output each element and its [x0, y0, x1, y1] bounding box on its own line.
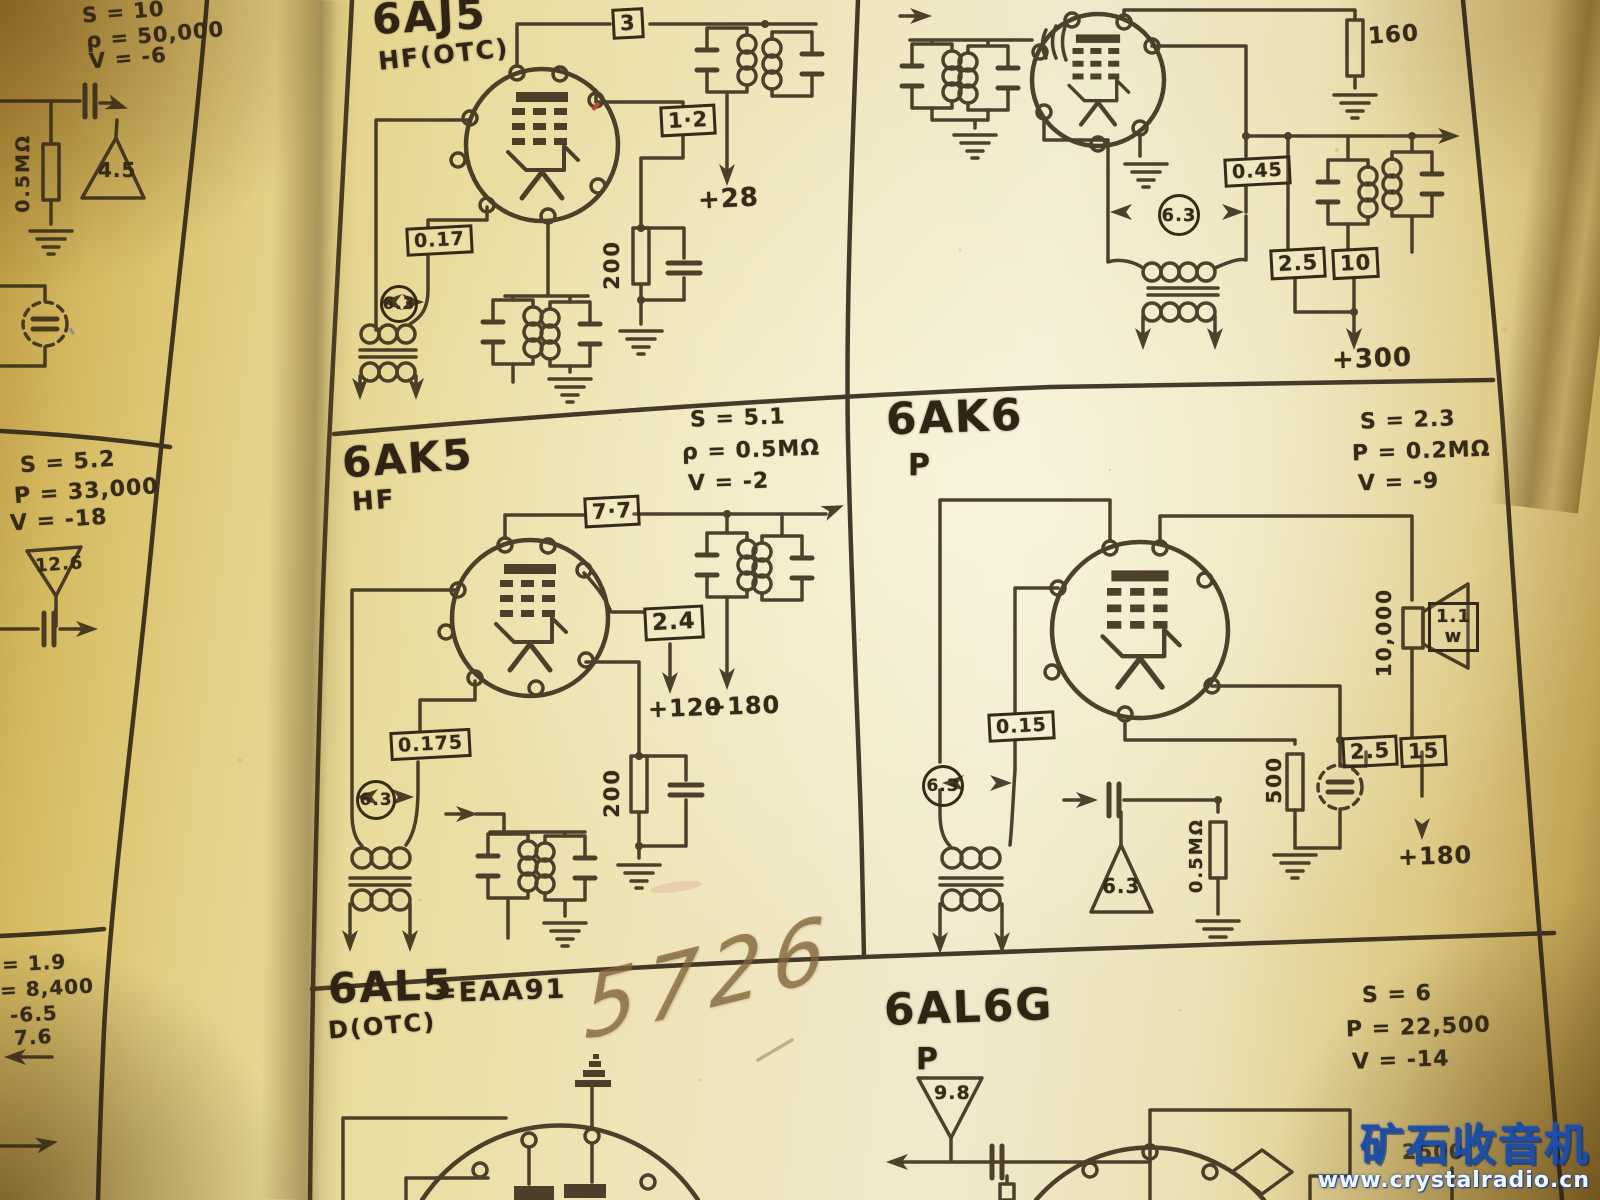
label-heater-6ak6: 6.3	[922, 765, 964, 807]
lp-bot-line4: 7.6	[13, 1024, 53, 1050]
cell-title-6ak5: 6AK5	[340, 429, 475, 487]
label-box-1-2: 1·2	[659, 104, 717, 138]
watermark: 矿石收音机 www.crystalradio.cn	[1318, 1123, 1590, 1192]
label-plus300: +300	[1332, 343, 1413, 376]
watermark-title: 矿石收音机	[1318, 1123, 1590, 1169]
param-v-6ak5: V = -2	[688, 469, 770, 497]
label-heater-6aj5: 6.3	[380, 285, 418, 323]
param-v-6al6g: V = -14	[1352, 1046, 1450, 1074]
param-v-6ak6: V = -9	[1358, 469, 1440, 497]
tube-6al5-circuit	[343, 1040, 792, 1200]
lp-mid-triangle-value: 12.6	[34, 552, 84, 576]
label-triangle-63: 6.3	[1102, 874, 1140, 898]
label-box-017: 0.17	[405, 224, 473, 256]
label-resistor-160: 160	[1367, 20, 1420, 49]
label-resistor-200-6aj5: 200	[600, 240, 624, 290]
label-box-015: 0.15	[987, 710, 1055, 742]
top-right-circuit	[900, 8, 1460, 350]
label-resistor-200-6ak5: 200	[600, 768, 624, 818]
lp-top-resistor-label: 0.5MΩ	[12, 134, 34, 213]
left-page-bottom-circuit	[0, 1049, 59, 1153]
tube-handbook-photo: S = 10 ρ = 50,000 V = -6 0.5MΩ 4.5 S = 5…	[0, 0, 1600, 1200]
lp-bot-line1: = 1.9	[1, 949, 66, 976]
label-transformer-10000: 10,000	[1372, 588, 1396, 677]
param-p-6al6g: P = 22,500	[1346, 1012, 1492, 1042]
param-p-6ak6: P = 0.2MΩ	[1352, 437, 1491, 467]
label-box-15: 15	[1399, 735, 1448, 769]
label-box-045: 0.45	[1223, 155, 1291, 187]
label-plus180-6ak5: +180	[706, 691, 781, 722]
lp-top-triangle-value: 4.5	[98, 158, 136, 182]
label-heater-6ak5: 6.3	[356, 780, 396, 820]
param-p-6ak5: ρ = 0.5MΩ	[682, 436, 821, 466]
label-box-0175: 0.175	[389, 728, 472, 761]
label-box-25-6ak6: 2.5	[1341, 735, 1399, 769]
label-box-3: 3	[611, 7, 644, 40]
param-s-6ak5: S = 5.1	[690, 404, 786, 432]
label-plus180-6ak6: +180	[1398, 841, 1473, 872]
label-speaker-power: 1.1 w	[1428, 602, 1479, 652]
speaker-power-value: 1.1	[1436, 606, 1471, 627]
cell-subtitle-6ak5: HF	[351, 485, 397, 518]
label-resistor-500: 500	[1262, 756, 1286, 804]
cell-equiv-6al5: =EAA91	[433, 974, 566, 1010]
label-box-25-topright: 2.5	[1269, 247, 1327, 281]
speaker-power-unit: w	[1445, 626, 1463, 647]
cell-subtitle-6al6g: P	[916, 1042, 940, 1077]
label-triangle-98: 9.8	[934, 1082, 971, 1104]
left-page-top-circuit	[0, 85, 144, 366]
label-plus28: +28	[697, 182, 759, 215]
lp-bot-line2: = 8,400	[0, 974, 95, 1003]
cell-title-6ak6: 6AK6	[885, 390, 1024, 446]
label-heater-topright: 6.3	[1158, 194, 1200, 236]
cell-title-6al6g: 6AL6G	[883, 979, 1054, 1036]
label-box-10-topright: 10	[1331, 247, 1380, 281]
label-box-24: 2.4	[643, 604, 704, 641]
tube-6ak5-circuit	[342, 498, 847, 952]
cell-subtitle-6ak6: P	[908, 448, 932, 483]
watermark-url: www.crystalradio.cn	[1318, 1169, 1590, 1192]
label-box-77: 7·7	[583, 495, 641, 529]
param-s-6ak6: S = 2.3	[1360, 406, 1456, 434]
label-resistor-05m: 0.5MΩ	[1186, 818, 1207, 893]
param-s-6al6g: S = 6	[1362, 981, 1433, 1008]
